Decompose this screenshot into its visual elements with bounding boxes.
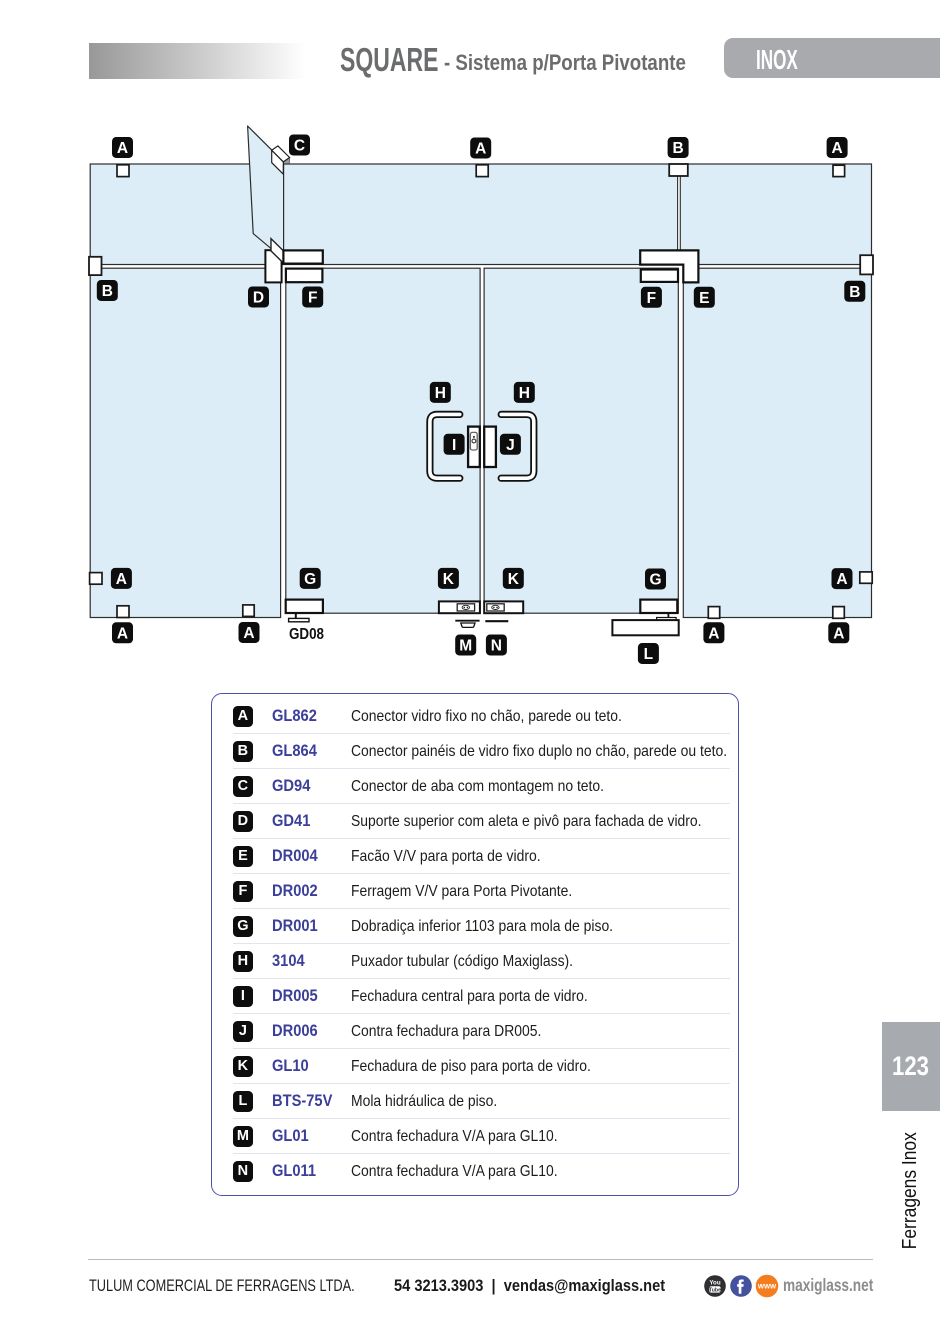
svg-text:GD08: GD08 — [289, 626, 324, 643]
svg-text:C: C — [294, 138, 305, 155]
svg-text:A: A — [243, 625, 254, 642]
svg-text:B: B — [849, 284, 860, 301]
svg-text:A: A — [836, 571, 847, 588]
svg-text:A: A — [831, 140, 842, 157]
svg-text:A: A — [708, 625, 719, 642]
svg-text:N: N — [491, 638, 502, 655]
svg-text:A: A — [117, 625, 128, 642]
svg-text:A: A — [833, 625, 844, 642]
svg-text:G: G — [304, 571, 316, 588]
svg-text:www: www — [757, 1282, 777, 1291]
svg-text:E: E — [699, 290, 709, 307]
svg-text:H: H — [519, 385, 530, 402]
svg-text:J: J — [506, 437, 515, 454]
svg-text:M: M — [459, 638, 472, 655]
svg-text:D: D — [253, 290, 264, 307]
svg-text:G: G — [649, 572, 661, 589]
svg-text:A: A — [475, 141, 486, 158]
svg-text:A: A — [117, 140, 128, 157]
svg-text:F: F — [308, 290, 317, 307]
svg-text:H: H — [435, 385, 446, 402]
svg-text:B: B — [102, 283, 113, 300]
svg-text:I: I — [452, 437, 456, 454]
svg-text:K: K — [443, 571, 455, 588]
svg-text:L: L — [644, 646, 653, 663]
svg-text:B: B — [672, 140, 683, 157]
svg-text:Tube: Tube — [709, 1288, 721, 1294]
svg-text:K: K — [508, 571, 520, 588]
svg-text:A: A — [116, 571, 127, 588]
svg-text:F: F — [647, 290, 656, 307]
svg-text:You: You — [709, 1280, 720, 1287]
